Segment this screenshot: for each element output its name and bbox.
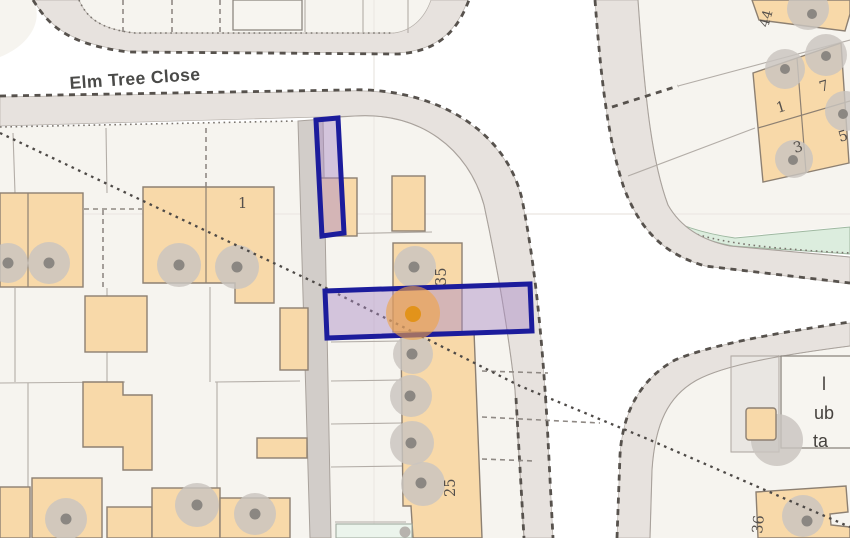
greenhouse-blob xyxy=(400,527,411,538)
plot-number-1: 1 xyxy=(238,196,247,212)
building-garage-b xyxy=(392,176,425,231)
club-label-line3: ta xyxy=(813,431,829,451)
tree-symbol xyxy=(394,246,436,288)
plot-number-25: 25 xyxy=(443,479,459,497)
plot-number-36: 36 xyxy=(750,514,768,534)
tree-symbol xyxy=(28,242,70,284)
tree-symbol xyxy=(175,483,219,527)
tree-symbol xyxy=(765,49,805,89)
tree-symbol xyxy=(390,375,432,417)
tree-symbol xyxy=(157,243,201,287)
building-outbuilding-a xyxy=(85,296,147,352)
tree-symbol xyxy=(215,245,259,289)
building-club-garage xyxy=(746,408,776,440)
club-label-line1: l xyxy=(822,374,826,394)
building-outbuilding-c xyxy=(257,438,307,458)
club-label-line2: ub xyxy=(814,403,834,423)
tree-symbol xyxy=(234,493,276,535)
location-marker-icon xyxy=(386,286,440,340)
tree-symbol xyxy=(401,462,445,506)
building-bottom-1 xyxy=(0,487,30,538)
tree-symbol xyxy=(390,421,434,465)
parcel-topleft-wedge xyxy=(0,0,37,57)
building-outbuilding-b xyxy=(280,308,308,370)
street-label: Elm Tree Close xyxy=(69,64,201,93)
map-svg: Elm Tree Close 1 35 25 44 1 7 3 5 36 l u… xyxy=(0,0,850,538)
tree-symbol xyxy=(805,34,847,76)
os-map-canvas[interactable]: Elm Tree Close 1 35 25 44 1 7 3 5 36 l u… xyxy=(0,0,850,538)
tree-symbol xyxy=(782,495,824,537)
parcel-left-block xyxy=(0,121,310,538)
selection-rect-vertical xyxy=(316,118,344,236)
building-north-strip xyxy=(233,0,302,30)
building-bottom-3 xyxy=(107,507,152,538)
plot-number-35: 35 xyxy=(434,268,450,286)
